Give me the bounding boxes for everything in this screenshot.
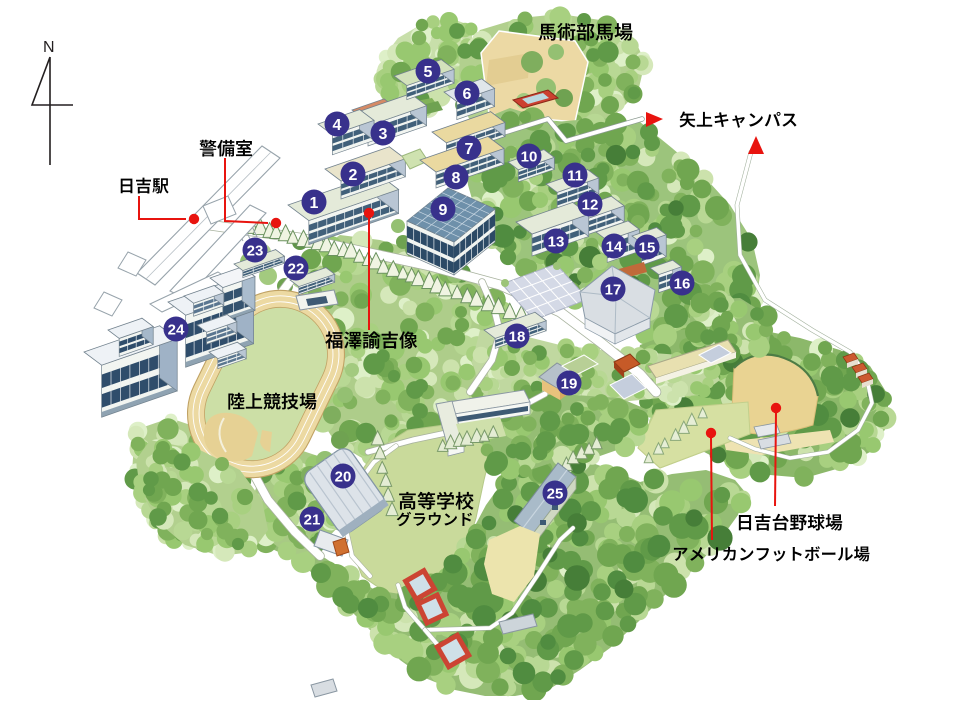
svg-text:20: 20: [335, 468, 352, 485]
svg-text:19: 19: [561, 375, 578, 392]
svg-text:6: 6: [463, 86, 472, 103]
svg-text:1: 1: [310, 195, 319, 212]
svg-text:21: 21: [304, 511, 321, 528]
svg-text:9: 9: [439, 202, 448, 219]
svg-text:10: 10: [521, 148, 538, 165]
svg-text:22: 22: [288, 260, 305, 277]
svg-text:24: 24: [168, 321, 185, 338]
svg-text:23: 23: [247, 242, 264, 259]
svg-text:12: 12: [582, 196, 599, 213]
svg-text:11: 11: [567, 167, 583, 184]
svg-text:2: 2: [349, 167, 358, 184]
svg-text:5: 5: [424, 64, 433, 81]
svg-text:3: 3: [379, 126, 388, 143]
svg-text:15: 15: [639, 239, 656, 256]
svg-text:18: 18: [509, 328, 526, 345]
svg-text:7: 7: [465, 141, 474, 158]
svg-text:4: 4: [333, 117, 342, 134]
svg-text:17: 17: [605, 281, 622, 298]
svg-text:8: 8: [452, 170, 461, 187]
svg-text:N: N: [43, 39, 55, 56]
svg-text:14: 14: [606, 238, 623, 255]
svg-text:16: 16: [674, 275, 691, 292]
svg-text:13: 13: [548, 233, 565, 250]
svg-text:25: 25: [547, 485, 564, 502]
